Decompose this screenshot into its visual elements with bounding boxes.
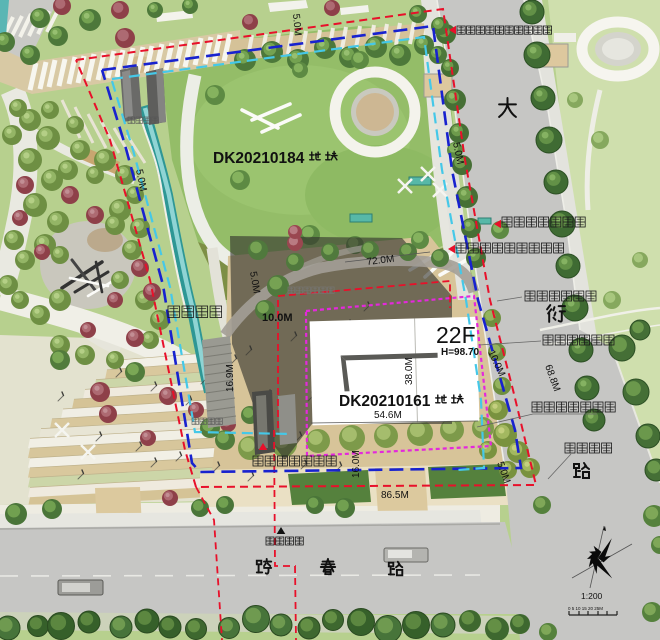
svg-text:DK20210184: DK20210184: [213, 150, 305, 167]
svg-text:H=98.70: H=98.70: [441, 347, 480, 358]
svg-text:0 5 10 15 20 25M: 0 5 10 15 20 25M: [568, 606, 603, 611]
svg-text:1:200: 1:200: [581, 591, 603, 601]
svg-text:16.0M: 16.0M: [351, 450, 362, 478]
svg-text:5.0M: 5.0M: [290, 13, 303, 36]
svg-text:54.6M: 54.6M: [374, 410, 402, 421]
svg-text:38.0M: 38.0M: [404, 357, 415, 385]
svg-text:10.0M: 10.0M: [262, 312, 293, 324]
svg-text:DK20210161: DK20210161: [339, 393, 431, 410]
svg-text:86.5M: 86.5M: [381, 490, 409, 501]
svg-text:22F: 22F: [436, 322, 476, 348]
svg-text:16.9M: 16.9M: [225, 364, 236, 392]
